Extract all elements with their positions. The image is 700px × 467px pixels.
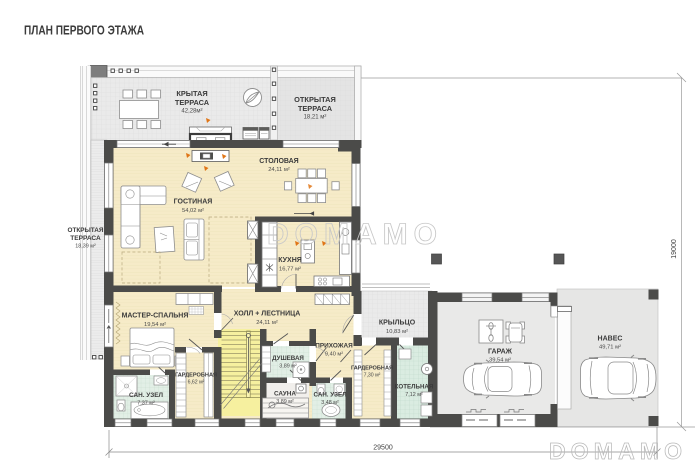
svg-text:КРЫЛЬЦО: КРЫЛЬЦО [379,320,416,327]
svg-text:19,54 м²: 19,54 м² [144,322,166,328]
svg-text:24,11 м²: 24,11 м² [256,320,278,326]
svg-text:54,02 м²: 54,02 м² [182,208,204,214]
svg-text:ТЕРРАСА: ТЕРРАСА [298,104,333,113]
svg-text:29500: 29500 [373,445,393,452]
svg-text:НАВЕС: НАВЕС [598,336,623,343]
svg-text:10,83 м²: 10,83 м² [386,329,408,335]
svg-text:СТОЛОВАЯ: СТОЛОВАЯ [259,158,298,165]
svg-text:САН. УЗЕЛ: САН. УЗЕЛ [129,392,163,399]
svg-text:САН. УЗЕЛ: САН. УЗЕЛ [314,392,347,399]
svg-text:3,48 м²: 3,48 м² [321,400,339,406]
svg-text:ОТКРЫТАЯ: ОТКРЫТАЯ [68,227,104,234]
svg-text:ГАРДЕРОБНАЯ: ГАРДЕРОБНАЯ [175,373,217,379]
svg-text:6,62 м²: 6,62 м² [188,380,205,386]
svg-text:16,77 м²: 16,77 м² [279,267,301,273]
svg-text:ТЕРРАСА: ТЕРРАСА [70,235,101,242]
svg-text:КОТЕЛЬНАЯ: КОТЕЛЬНАЯ [395,384,434,391]
svg-text:49,71 м²: 49,71 м² [599,345,621,351]
svg-text:ГАРАЖ: ГАРАЖ [488,349,513,356]
svg-text:КРЫТАЯ: КРЫТАЯ [176,89,207,98]
svg-text:18,39 м²: 18,39 м² [75,244,96,250]
svg-text:3,89 м²: 3,89 м² [276,399,294,405]
svg-text:ПЛАН ПЕРВОГО ЭТАЖА: ПЛАН ПЕРВОГО ЭТАЖА [24,23,144,38]
svg-text:МАСТЕР-СПАЛЬНЯ: МАСТЕР-СПАЛЬНЯ [122,313,189,320]
svg-text:42,28м²: 42,28м² [181,109,202,115]
svg-text:9,40 м²: 9,40 м² [325,352,343,358]
svg-text:ОТКРЫТАЯ: ОТКРЫТАЯ [294,95,336,104]
svg-text:ХОЛЛ + ЛЕСТНИЦА: ХОЛЛ + ЛЕСТНИЦА [234,311,301,318]
svg-text:7,12 м²: 7,12 м² [405,392,423,398]
svg-text:3,89 м²: 3,89 м² [279,364,297,370]
svg-text:24,11 м²: 24,11 м² [268,167,290,173]
svg-text:ДУШЕВАЯ: ДУШЕВАЯ [272,355,304,362]
svg-text:39,54 м²: 39,54 м² [489,358,511,364]
svg-text:ГАРДЕРОБНАЯ: ГАРДЕРОБНАЯ [351,366,393,372]
svg-text:7,30 м²: 7,30 м² [364,373,381,379]
svg-text:КУХНЯ: КУХНЯ [278,257,302,264]
svg-text:18,21 м²: 18,21 м² [304,115,327,121]
svg-text:19000: 19000 [671,239,678,259]
svg-text:ГОСТИНАЯ: ГОСТИНАЯ [174,199,213,206]
svg-text:ПРИХОЖАЯ: ПРИХОЖАЯ [315,343,353,350]
svg-text:САУНА: САУНА [274,391,296,398]
svg-text:7,37 м²: 7,37 м² [137,401,155,407]
svg-text:ТЕРРАСА: ТЕРРАСА [175,98,210,107]
